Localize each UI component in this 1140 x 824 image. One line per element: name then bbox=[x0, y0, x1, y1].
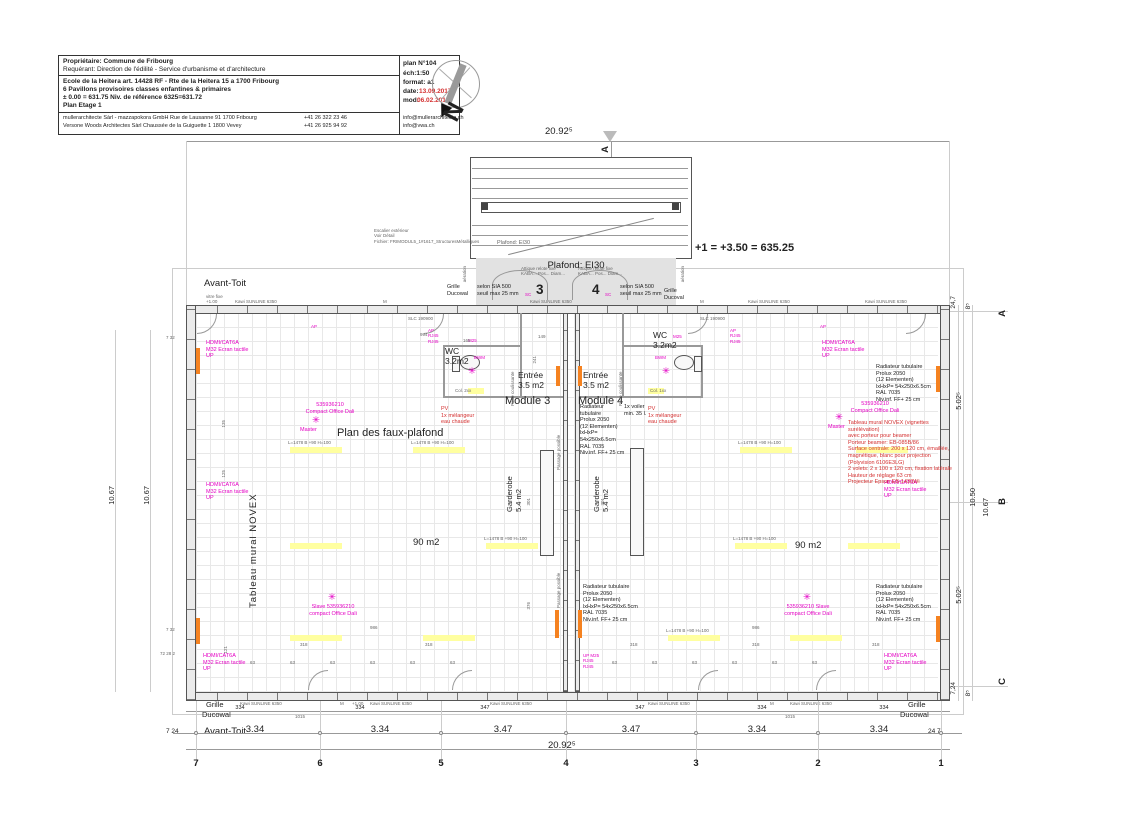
dim-small: 165 bbox=[463, 338, 471, 343]
slc-tag: SLC 190900 bbox=[408, 316, 433, 321]
dim-left: 10.67 bbox=[107, 486, 116, 505]
pv-mixer-note: PV 1x mélangeur eau chaude bbox=[648, 406, 681, 426]
dali-symbol: ✳ bbox=[312, 415, 320, 426]
up-m25-stack: UP M25 RJ45 RJ45 bbox=[583, 653, 599, 669]
vitre-fixe-note: vitre fixe +1.00 bbox=[206, 294, 223, 305]
dim-right: 10.50 bbox=[968, 488, 977, 507]
dim-small: 63 bbox=[250, 660, 255, 665]
dim-right: 10.67 bbox=[981, 498, 990, 517]
orange-marker bbox=[556, 366, 560, 386]
entree-label-right: Entrée 3.5 m2 bbox=[583, 370, 609, 390]
column-tag-right: Col. 1xx bbox=[650, 388, 666, 393]
dim-bay: 3.34 bbox=[727, 724, 787, 735]
section-marker-triangle bbox=[603, 131, 617, 142]
hdmi-outlet-label: HDMI/CAT6A M32 Ecran tactile UP bbox=[203, 653, 246, 673]
dim-small: 63 bbox=[290, 660, 295, 665]
dim-sub: 334 bbox=[335, 705, 385, 712]
dim-small: 63 bbox=[692, 660, 697, 665]
dim-small: 63 bbox=[612, 660, 617, 665]
porte-coulissante-label: Porte coulissante bbox=[510, 358, 515, 406]
dim-bay: 3.34 bbox=[350, 724, 410, 735]
dim-small: 986 bbox=[370, 625, 378, 630]
dim-small: 63 bbox=[652, 660, 657, 665]
window-label: Kawi SUNLINE 6350 bbox=[530, 299, 572, 304]
dim-sub: 347 bbox=[460, 705, 510, 712]
dim-small: 63 bbox=[410, 660, 415, 665]
level-ref-line: ± 0.00 = 631.75 Niv. de référence 6325=6… bbox=[63, 94, 202, 102]
hdmi-outlet-label: HDMI/CAT6A M32 Ecran tactile UP bbox=[884, 653, 927, 673]
window-m-tag: M bbox=[700, 299, 704, 304]
project-line-2: 6 Pavillons provisoires classes enfantin… bbox=[63, 86, 231, 94]
dim-small: 318 bbox=[300, 642, 308, 647]
light-label: L=1478 B +90 H=100 bbox=[484, 536, 527, 541]
plan-scale: éch:1:50 bbox=[403, 70, 429, 78]
grid-row-label-b: B bbox=[997, 498, 1008, 505]
dim-small: 318 bbox=[630, 642, 638, 647]
light-fixture bbox=[423, 635, 475, 641]
dim-tick bbox=[318, 731, 322, 735]
radiator-note: Radiateur tubulaire Prolux 2050 (12 Elem… bbox=[583, 584, 639, 624]
light-label: L=1478 B +90 H=100 bbox=[411, 440, 454, 445]
dim-line-right bbox=[958, 305, 959, 701]
light-fixture bbox=[848, 543, 900, 549]
architect-1-tel: +41 26 322 23 46 bbox=[304, 115, 347, 122]
grid-col-label: 4 bbox=[559, 758, 573, 769]
dim-total-top: 20.92⁵ bbox=[545, 126, 573, 137]
dali-symbol: ✳ bbox=[803, 592, 811, 603]
ap-rj45-stack: AP RJ45 RJ45 bbox=[730, 328, 741, 344]
dim-left: 10.67 bbox=[142, 486, 151, 505]
entree-label-left: Entrée 3.5 m2 bbox=[518, 370, 544, 390]
plan-format: format: a1 bbox=[403, 79, 434, 87]
dim-tick bbox=[194, 731, 198, 735]
grille-label-br: Grille bbox=[908, 700, 926, 709]
window-label: Kawi SUNLINE 6350 bbox=[235, 299, 277, 304]
dim-small: 135 bbox=[221, 420, 226, 428]
window-label: Kawi SUNLINE 6350 bbox=[748, 299, 790, 304]
light-label: L=1478 B +90 H=100 bbox=[738, 440, 781, 445]
wall-west bbox=[186, 305, 196, 701]
door-sc-tag: SC bbox=[605, 292, 611, 297]
plan-date-label: date: bbox=[403, 88, 419, 96]
light-fixture bbox=[290, 447, 342, 453]
orange-marker bbox=[196, 348, 200, 374]
level-annotation: +1 = +3.50 = 635.25 bbox=[695, 242, 794, 255]
applicant-line: Requérant: Direction de l'édilité - Serv… bbox=[63, 66, 265, 74]
dim-small: 318 bbox=[872, 642, 880, 647]
faux-plafond-title: Plan des faux-plafond bbox=[337, 427, 443, 440]
wardrobe-bench bbox=[540, 450, 554, 556]
dali-slave-label-right: 535936210 Slave compact Office Dali bbox=[775, 604, 841, 617]
dali-symbol: ✳ bbox=[328, 592, 336, 603]
dim-tick bbox=[439, 731, 443, 735]
dim-sub: 334 bbox=[859, 705, 909, 712]
dim-right: 8⁵ bbox=[965, 690, 973, 696]
radiator-note: Radiateur tubulaire Prolux 2050 (12 Elem… bbox=[876, 364, 932, 404]
tableau-novex-label: Tableau mural NOVEX bbox=[248, 443, 259, 608]
dim-line bbox=[186, 711, 950, 712]
wall-south bbox=[186, 692, 950, 701]
stair-landing-rail bbox=[481, 202, 681, 213]
grid-col-label: 7 bbox=[189, 758, 203, 769]
dim-sub: 347 bbox=[615, 705, 665, 712]
window-label: Kawi SUNLINE 6350 bbox=[790, 701, 832, 706]
section-marker-label: A bbox=[600, 146, 611, 153]
title-block: Propriétaire: Commune de Fribourg Requér… bbox=[58, 55, 460, 135]
novex-board-note: Tableau mural NOVEX (vignettes surélévat… bbox=[848, 420, 956, 486]
dim-small: 986 bbox=[752, 625, 760, 630]
stair-rail-post bbox=[481, 203, 488, 210]
dim-total-bottom: 20.92⁵ bbox=[548, 740, 576, 751]
grid-row-label-c: C bbox=[997, 678, 1008, 685]
orange-marker bbox=[936, 366, 940, 392]
grid-col-label: 2 bbox=[811, 758, 825, 769]
dim-small: 149 bbox=[538, 334, 546, 339]
dim-small: 63 bbox=[450, 660, 455, 665]
dim-right: 8⁵ bbox=[965, 303, 973, 309]
dim-right: 24,7 bbox=[950, 296, 958, 309]
window-label: Kawi SUNLINE 6350 bbox=[865, 299, 907, 304]
m25-tag: M25 bbox=[673, 334, 682, 339]
dim-small: 63 bbox=[330, 660, 335, 665]
dim-tick bbox=[939, 731, 943, 735]
wall-north bbox=[186, 305, 950, 314]
light-fixture bbox=[740, 447, 792, 453]
dim-line-left bbox=[150, 330, 151, 692]
dim-edge-left: 7 24 bbox=[166, 728, 179, 736]
dim-tick bbox=[816, 731, 820, 735]
aeration-label: aération bbox=[462, 266, 467, 282]
ap-tag: AP bbox=[311, 324, 317, 329]
dim-right: 5.02⁵ bbox=[954, 392, 963, 410]
dim-tick bbox=[694, 731, 698, 735]
light-fixture bbox=[290, 543, 342, 549]
orange-marker bbox=[196, 618, 200, 644]
hdmi-outlet-label: HDMI/CAT6A M32 Ecran tactile UP bbox=[822, 340, 865, 360]
architect-1: mullerarchitecte Sàrl - mazzapokora GmbH… bbox=[63, 115, 257, 122]
passage-possible-label: Passage possible bbox=[556, 418, 561, 470]
hdmi-outlet-label: HDMI/CAT6A M32 Ecran tactile UP bbox=[206, 340, 249, 360]
grille-ducowal-label: Grille Ducowal bbox=[447, 284, 468, 297]
architect-2-tel: +41 26 925 94 92 bbox=[304, 123, 347, 130]
garderobe-label-left: Garderobe 5.4 m2 bbox=[505, 428, 523, 512]
dali-master-tag: Master bbox=[300, 427, 317, 434]
dim-1015: 1015 bbox=[275, 714, 325, 719]
dim-right: 7,24 bbox=[950, 682, 958, 695]
voilier-note: 1x voiler min. 35 l. bbox=[624, 404, 646, 417]
dim-sub: 334 bbox=[215, 705, 265, 712]
grid-col-label: 6 bbox=[313, 758, 327, 769]
grid-row-line bbox=[950, 686, 1008, 687]
title-block-rule-2 bbox=[59, 112, 399, 113]
sheet-name: Plan Etage 1 bbox=[63, 102, 102, 110]
room-area-right: 90 m2 bbox=[795, 540, 821, 551]
dim-1015: 1015 bbox=[765, 714, 815, 719]
stair-rail-post bbox=[672, 203, 679, 210]
porte-coulissante-label: Porte coulissante bbox=[618, 358, 623, 406]
door-sc-tag: SC bbox=[525, 292, 531, 297]
room-area-left: 90 m2 bbox=[413, 537, 439, 548]
dali-master-tag: Master bbox=[828, 424, 845, 431]
dim-small: 301 bbox=[600, 498, 605, 506]
dim-tick bbox=[564, 731, 568, 735]
stair-ceiling-label: Plafond: EI30 bbox=[497, 240, 530, 247]
dim-small: 376 bbox=[526, 602, 531, 610]
passage-possible-label: Passage possible bbox=[556, 556, 561, 608]
attique-note: Attique relote fixe KABA... Pos... Diam.… bbox=[521, 266, 565, 277]
dali-slave-label-left: Slave 535936210 compact Office Dali bbox=[300, 604, 366, 617]
ap-tag: AP bbox=[820, 324, 826, 329]
dim-right: 5.02⁵ bbox=[954, 586, 963, 604]
wardrobe-bench bbox=[630, 448, 644, 556]
light-label: L=1478 B +90 H=100 bbox=[288, 440, 331, 445]
dali-symbol: ✳ bbox=[835, 412, 843, 423]
light-fixture bbox=[290, 635, 342, 641]
ap-rj45-stack: AP RJ45 RJ45 bbox=[428, 328, 439, 344]
dim-small: 63 bbox=[812, 660, 817, 665]
dim-small: 125 bbox=[221, 470, 226, 478]
dali-master-label-left: 535936210 Compact Office Dali bbox=[300, 402, 360, 415]
grid-col-label: 1 bbox=[934, 758, 948, 769]
light-label: L=1478 B +90 H=100 bbox=[666, 628, 709, 633]
light-fixture bbox=[413, 447, 465, 453]
dim-line-left bbox=[115, 330, 116, 692]
wc-cistern bbox=[694, 356, 702, 372]
light-fixture bbox=[735, 543, 787, 549]
light-fixture bbox=[486, 543, 538, 549]
grid-col-label: 5 bbox=[434, 758, 448, 769]
orange-marker bbox=[936, 616, 940, 642]
sia-threshold-note-left: selon SIA 500 seuil max 25 mm bbox=[477, 284, 519, 297]
attique-note: Attique relote fixe KABA... Pos... Diam.… bbox=[578, 266, 622, 277]
dim-small: 7 32 bbox=[166, 335, 175, 340]
dim-small: 994 bbox=[420, 332, 428, 337]
aeration-label: aération bbox=[680, 266, 685, 282]
dim-bay: 3.34 bbox=[849, 724, 909, 735]
floor-plan-sheet: Propriétaire: Commune de Fribourg Requér… bbox=[0, 0, 1140, 824]
window-m-tag: M bbox=[383, 299, 387, 304]
dim-small: 318 bbox=[425, 642, 433, 647]
dim-small: 318 bbox=[752, 642, 760, 647]
pv-mixer-note: PV 1x mélangeur eau chaude bbox=[441, 406, 474, 426]
north-arrow bbox=[432, 60, 480, 108]
lavabo-symbol: ✳ bbox=[662, 366, 670, 377]
bwm-tag: BWM bbox=[474, 355, 485, 360]
slc-tag: SLC 190900 bbox=[700, 316, 725, 321]
dim-small: 301 bbox=[526, 498, 531, 506]
door-number-3: 3 bbox=[536, 282, 544, 298]
orange-marker bbox=[555, 610, 559, 638]
orange-marker bbox=[578, 610, 582, 638]
grille-ducoval-label: Grille Ducoval bbox=[664, 288, 684, 301]
dim-small: 72 28 2 bbox=[160, 651, 175, 656]
door-number-4: 4 bbox=[592, 282, 600, 298]
dim-small: 63 bbox=[772, 660, 777, 665]
bwm-tag: BWM bbox=[655, 355, 666, 360]
lavabo-symbol: ✳ bbox=[468, 366, 476, 377]
dim-small: 7 32 bbox=[166, 627, 175, 632]
light-fixture bbox=[668, 635, 720, 641]
dim-bay: 3.47 bbox=[473, 724, 533, 735]
dim-small: 121 bbox=[223, 646, 228, 654]
wc-room-label-left: WC 3.2m2 bbox=[445, 346, 469, 366]
plan-number: plan N°104 bbox=[403, 60, 436, 68]
wall-east bbox=[940, 305, 950, 701]
owner-line: Propriétaire: Commune de Fribourg bbox=[63, 58, 173, 66]
architect-2-mail: info@vwa.ch bbox=[403, 123, 435, 130]
sia-threshold-note-right: selon SIA 500 seuil max 25 mm bbox=[620, 284, 662, 297]
light-fixture bbox=[790, 635, 842, 641]
dim-bay: 3.47 bbox=[601, 724, 661, 735]
project-line-1: Ecole de la Heitera art. 14428 RF - Rte … bbox=[63, 78, 279, 86]
orange-marker bbox=[578, 366, 582, 386]
wc-toilet bbox=[674, 355, 694, 370]
stair-treads-upper bbox=[472, 159, 688, 199]
column-tag-left: Col. 2xx bbox=[455, 388, 471, 393]
wall-center-left bbox=[563, 313, 568, 692]
avant-toit-label-top: Avant-Toit bbox=[204, 278, 246, 289]
grid-col-label: 3 bbox=[689, 758, 703, 769]
light-label: L=1478 B +90 H=100 bbox=[733, 536, 776, 541]
hdmi-outlet-label: HDMI/CAT6A M32 Ecran tactile UP bbox=[206, 482, 249, 502]
grid-row-label-a: A bbox=[997, 310, 1008, 317]
dim-small: 63 bbox=[370, 660, 375, 665]
title-block-divider bbox=[399, 56, 400, 134]
dim-line-top bbox=[186, 141, 950, 142]
stair-detail-note: Escalier extérieur Voir Détail Fichier: … bbox=[374, 228, 479, 244]
title-block-rule bbox=[59, 75, 399, 76]
radiator-note: Radiateur tubulaire Prolux 2050 (12 Elem… bbox=[876, 584, 932, 624]
dim-bay: 3.34 bbox=[225, 724, 285, 735]
radiator-note: Radiateur tubulaire Prolux 2050 (12 Elem… bbox=[580, 404, 626, 457]
dim-small: 241 bbox=[532, 356, 537, 364]
dim-sub: 334 bbox=[737, 705, 787, 712]
dim-small: 63 bbox=[732, 660, 737, 665]
architect-2: Versone Woods Architectes Sàrl Chaussée … bbox=[63, 123, 241, 130]
